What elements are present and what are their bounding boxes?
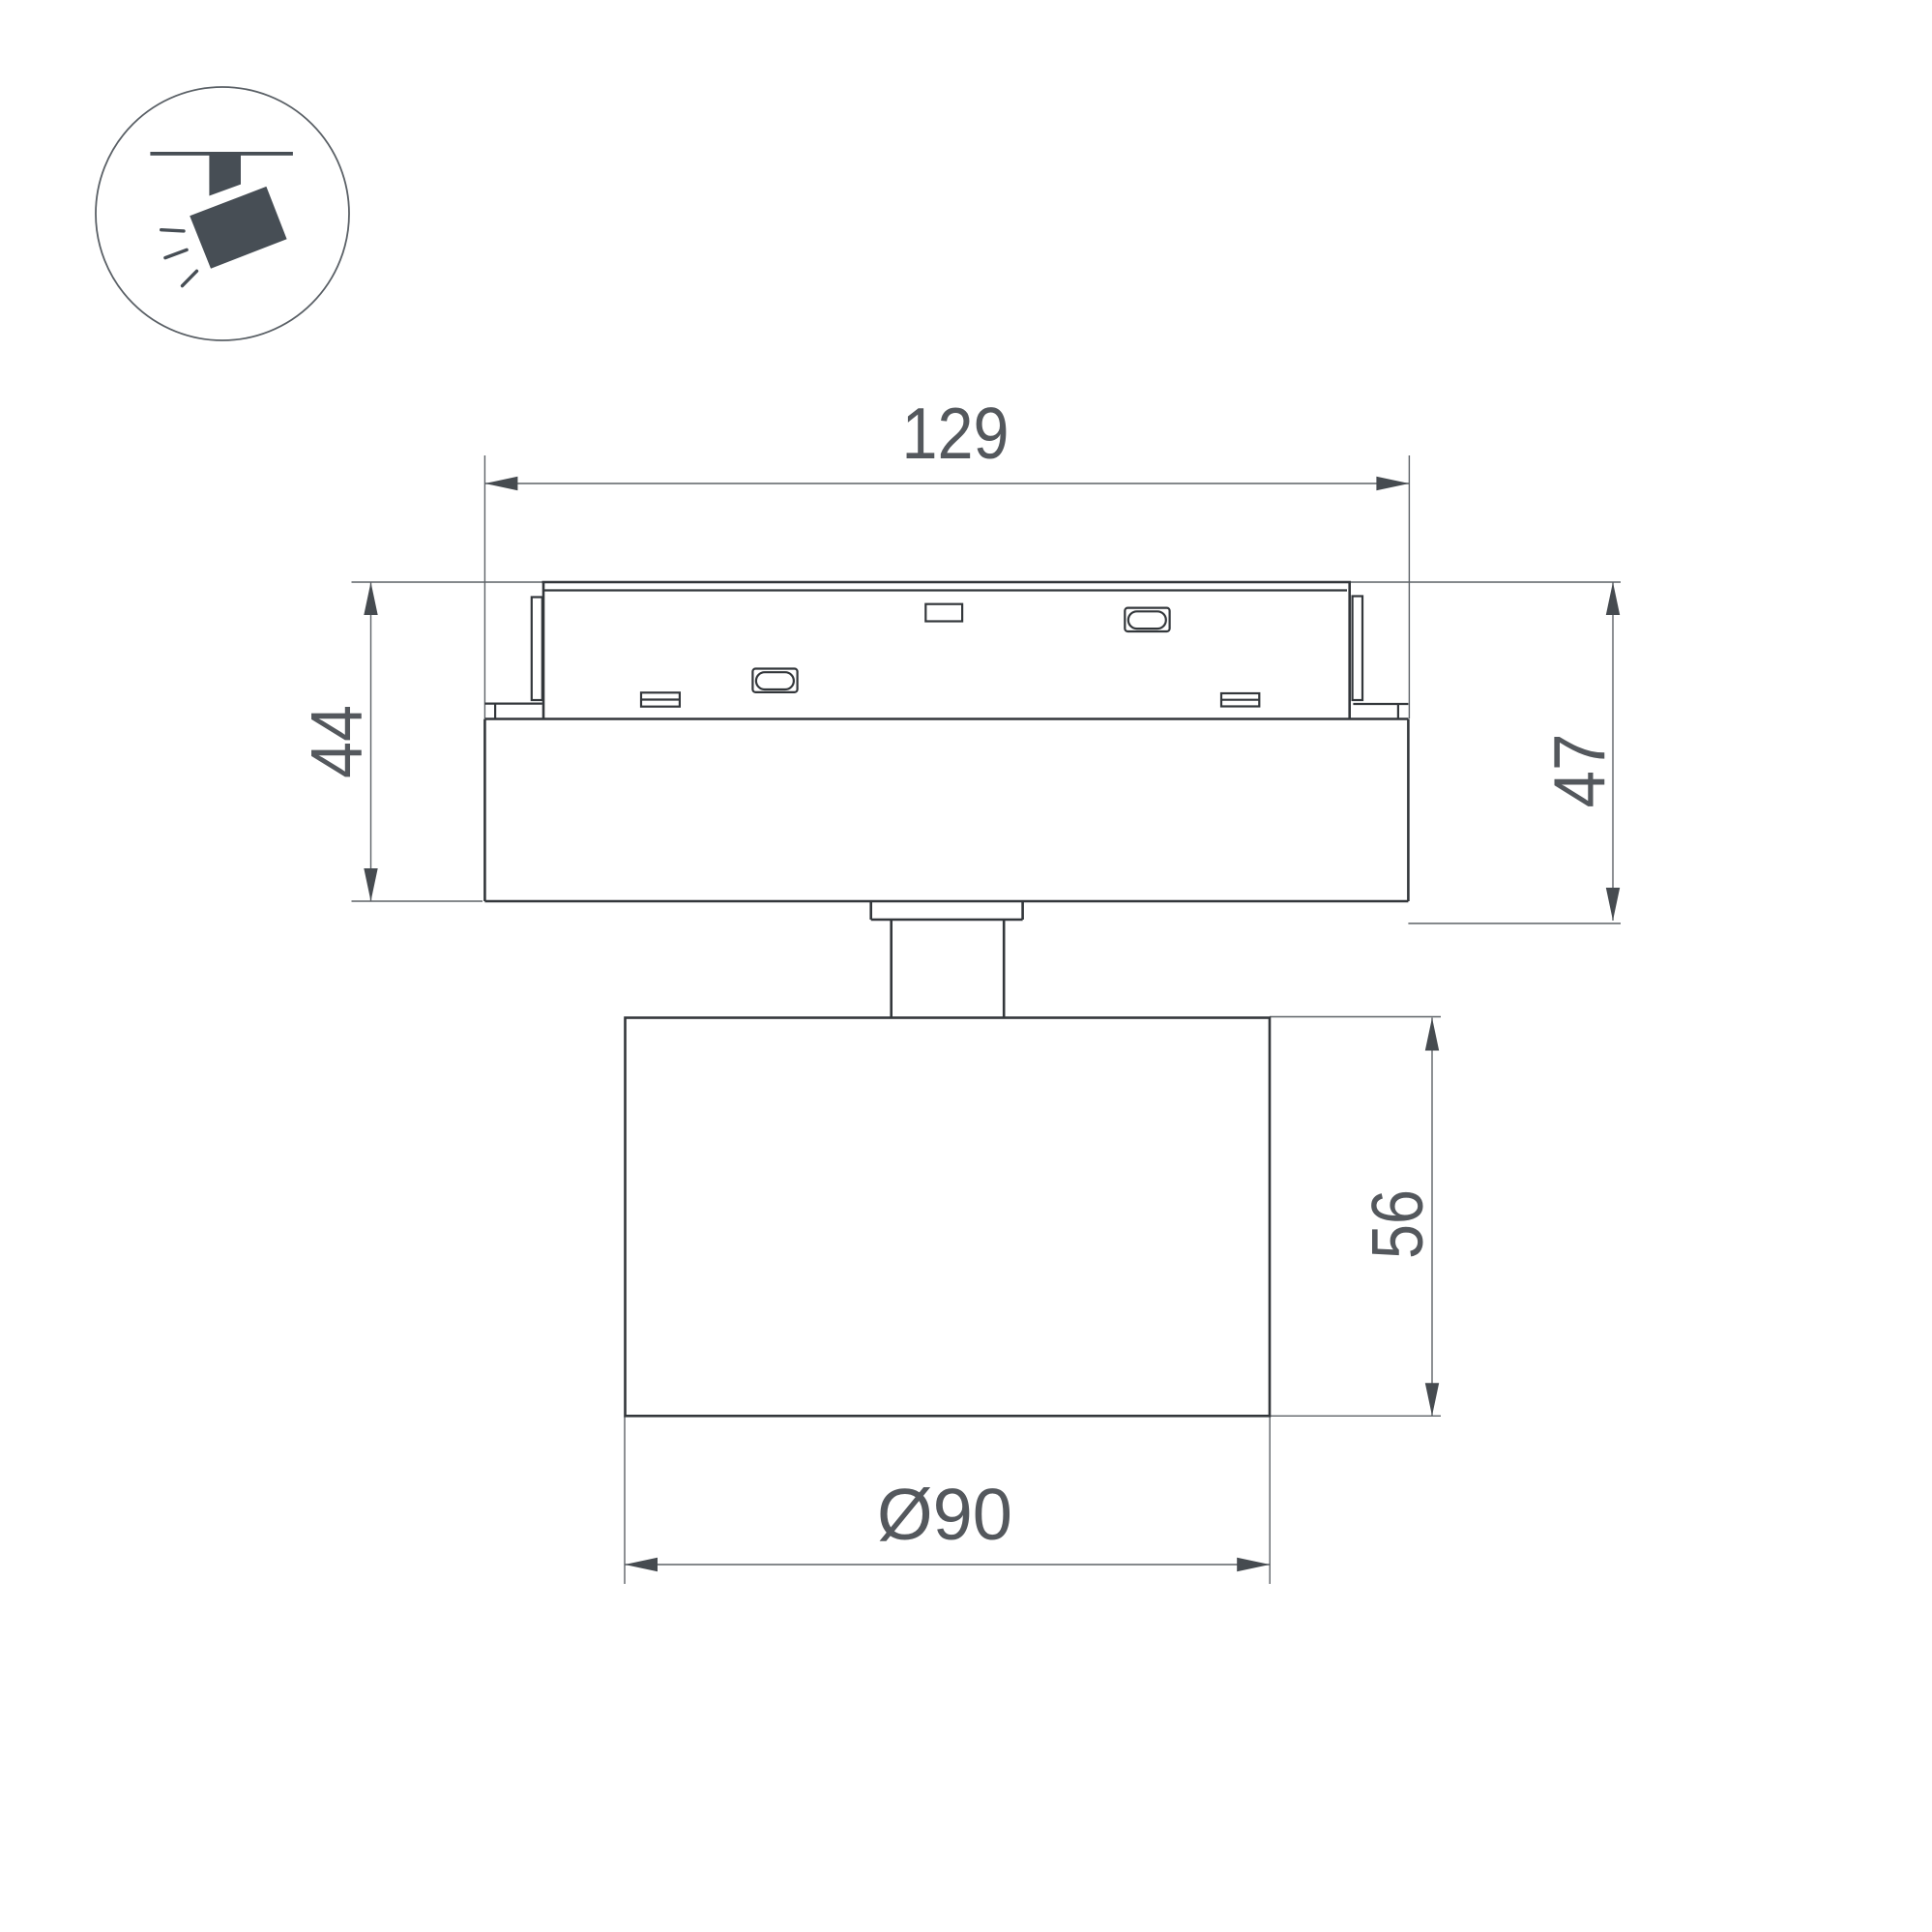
svg-text:47: 47 (1538, 734, 1620, 808)
svg-text:129: 129 (902, 393, 1010, 474)
svg-text:Ø90: Ø90 (877, 1474, 1012, 1555)
svg-text:44: 44 (296, 705, 377, 778)
svg-text:56: 56 (1357, 1189, 1438, 1259)
